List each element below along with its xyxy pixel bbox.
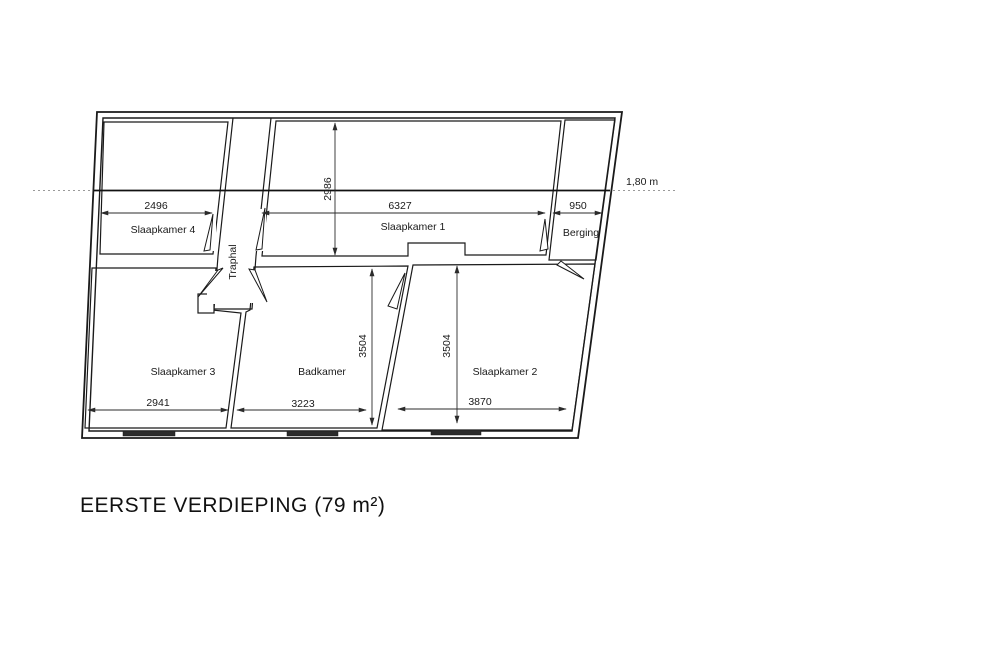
room-label-traphal: Traphal — [227, 244, 239, 279]
dim-slaapkamer-4-width: 2496 — [144, 200, 168, 212]
height-line-label: 1,80 m — [626, 176, 658, 188]
room-label-berging: Berging — [563, 227, 599, 239]
dim-slaapkamer-1-depth: 2986 — [322, 177, 334, 201]
dim-slaapkamer-2-depth: 3504 — [441, 334, 453, 358]
room-label-slaapkamer-4: Slaapkamer 4 — [131, 224, 196, 236]
outer-wall — [82, 112, 622, 438]
room-label-badkamer: Badkamer — [298, 366, 346, 378]
window-slaapkamer-2 — [431, 430, 481, 435]
window-badkamer — [287, 431, 338, 436]
dim-slaapkamer-2-width: 3870 — [468, 396, 492, 408]
plan-title: EERSTE VERDIEPING (79 m²) — [80, 494, 385, 518]
room-label-slaapkamer-2: Slaapkamer 2 — [473, 366, 538, 378]
room-label-slaapkamer-1: Slaapkamer 1 — [381, 221, 446, 233]
dim-slaapkamer-3-width: 2941 — [146, 397, 170, 409]
floor-plan-page: 2496 6327 950 2986 2941 3223 3870 3504 3… — [0, 0, 1000, 660]
dim-slaapkamer-1-width: 6327 — [388, 200, 412, 212]
window-slaapkamer-3 — [123, 431, 175, 436]
dim-berging-width: 950 — [569, 200, 587, 212]
dim-badkamer-width: 3223 — [291, 398, 315, 410]
dim-badkamer-depth: 3504 — [357, 334, 369, 358]
floor-plan-drawing: 2496 6327 950 2986 2941 3223 3870 3504 3… — [0, 0, 1000, 660]
room-label-slaapkamer-3: Slaapkamer 3 — [151, 366, 216, 378]
